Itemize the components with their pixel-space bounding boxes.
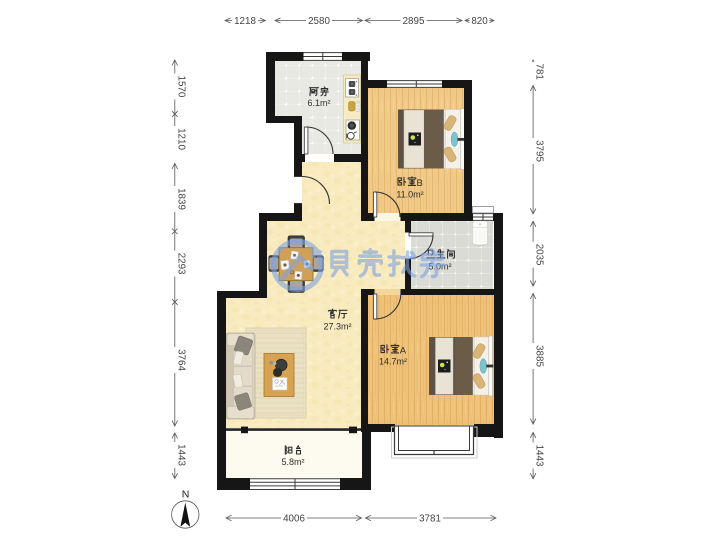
svg-text:3885: 3885 (534, 345, 545, 367)
svg-text:2293: 2293 (175, 253, 186, 275)
svg-text:781: 781 (534, 64, 545, 80)
svg-text:1443: 1443 (534, 445, 545, 467)
svg-text:B: B (417, 178, 423, 189)
svg-text:3764: 3764 (175, 349, 186, 371)
svg-text:N: N (182, 489, 190, 501)
svg-text:3781: 3781 (419, 514, 441, 525)
svg-text:820: 820 (471, 16, 488, 27)
svg-text:5.8m²: 5.8m² (281, 457, 304, 467)
svg-text:4006: 4006 (283, 514, 305, 525)
svg-text:1210: 1210 (175, 128, 186, 150)
svg-text:14.7m²: 14.7m² (379, 356, 407, 366)
svg-text:3795: 3795 (534, 140, 545, 162)
svg-text:2895: 2895 (403, 16, 425, 27)
svg-text:27.3m²: 27.3m² (323, 321, 351, 331)
svg-text:1839: 1839 (175, 188, 186, 210)
svg-text:1570: 1570 (175, 76, 186, 98)
svg-text:1218: 1218 (234, 16, 256, 27)
svg-text:1443: 1443 (175, 444, 186, 466)
svg-text:6.1m²: 6.1m² (307, 98, 330, 108)
svg-text:11.0m²: 11.0m² (396, 189, 423, 199)
svg-text:A: A (400, 345, 407, 356)
svg-text:2580: 2580 (308, 16, 330, 27)
svg-text:2035: 2035 (534, 244, 545, 266)
